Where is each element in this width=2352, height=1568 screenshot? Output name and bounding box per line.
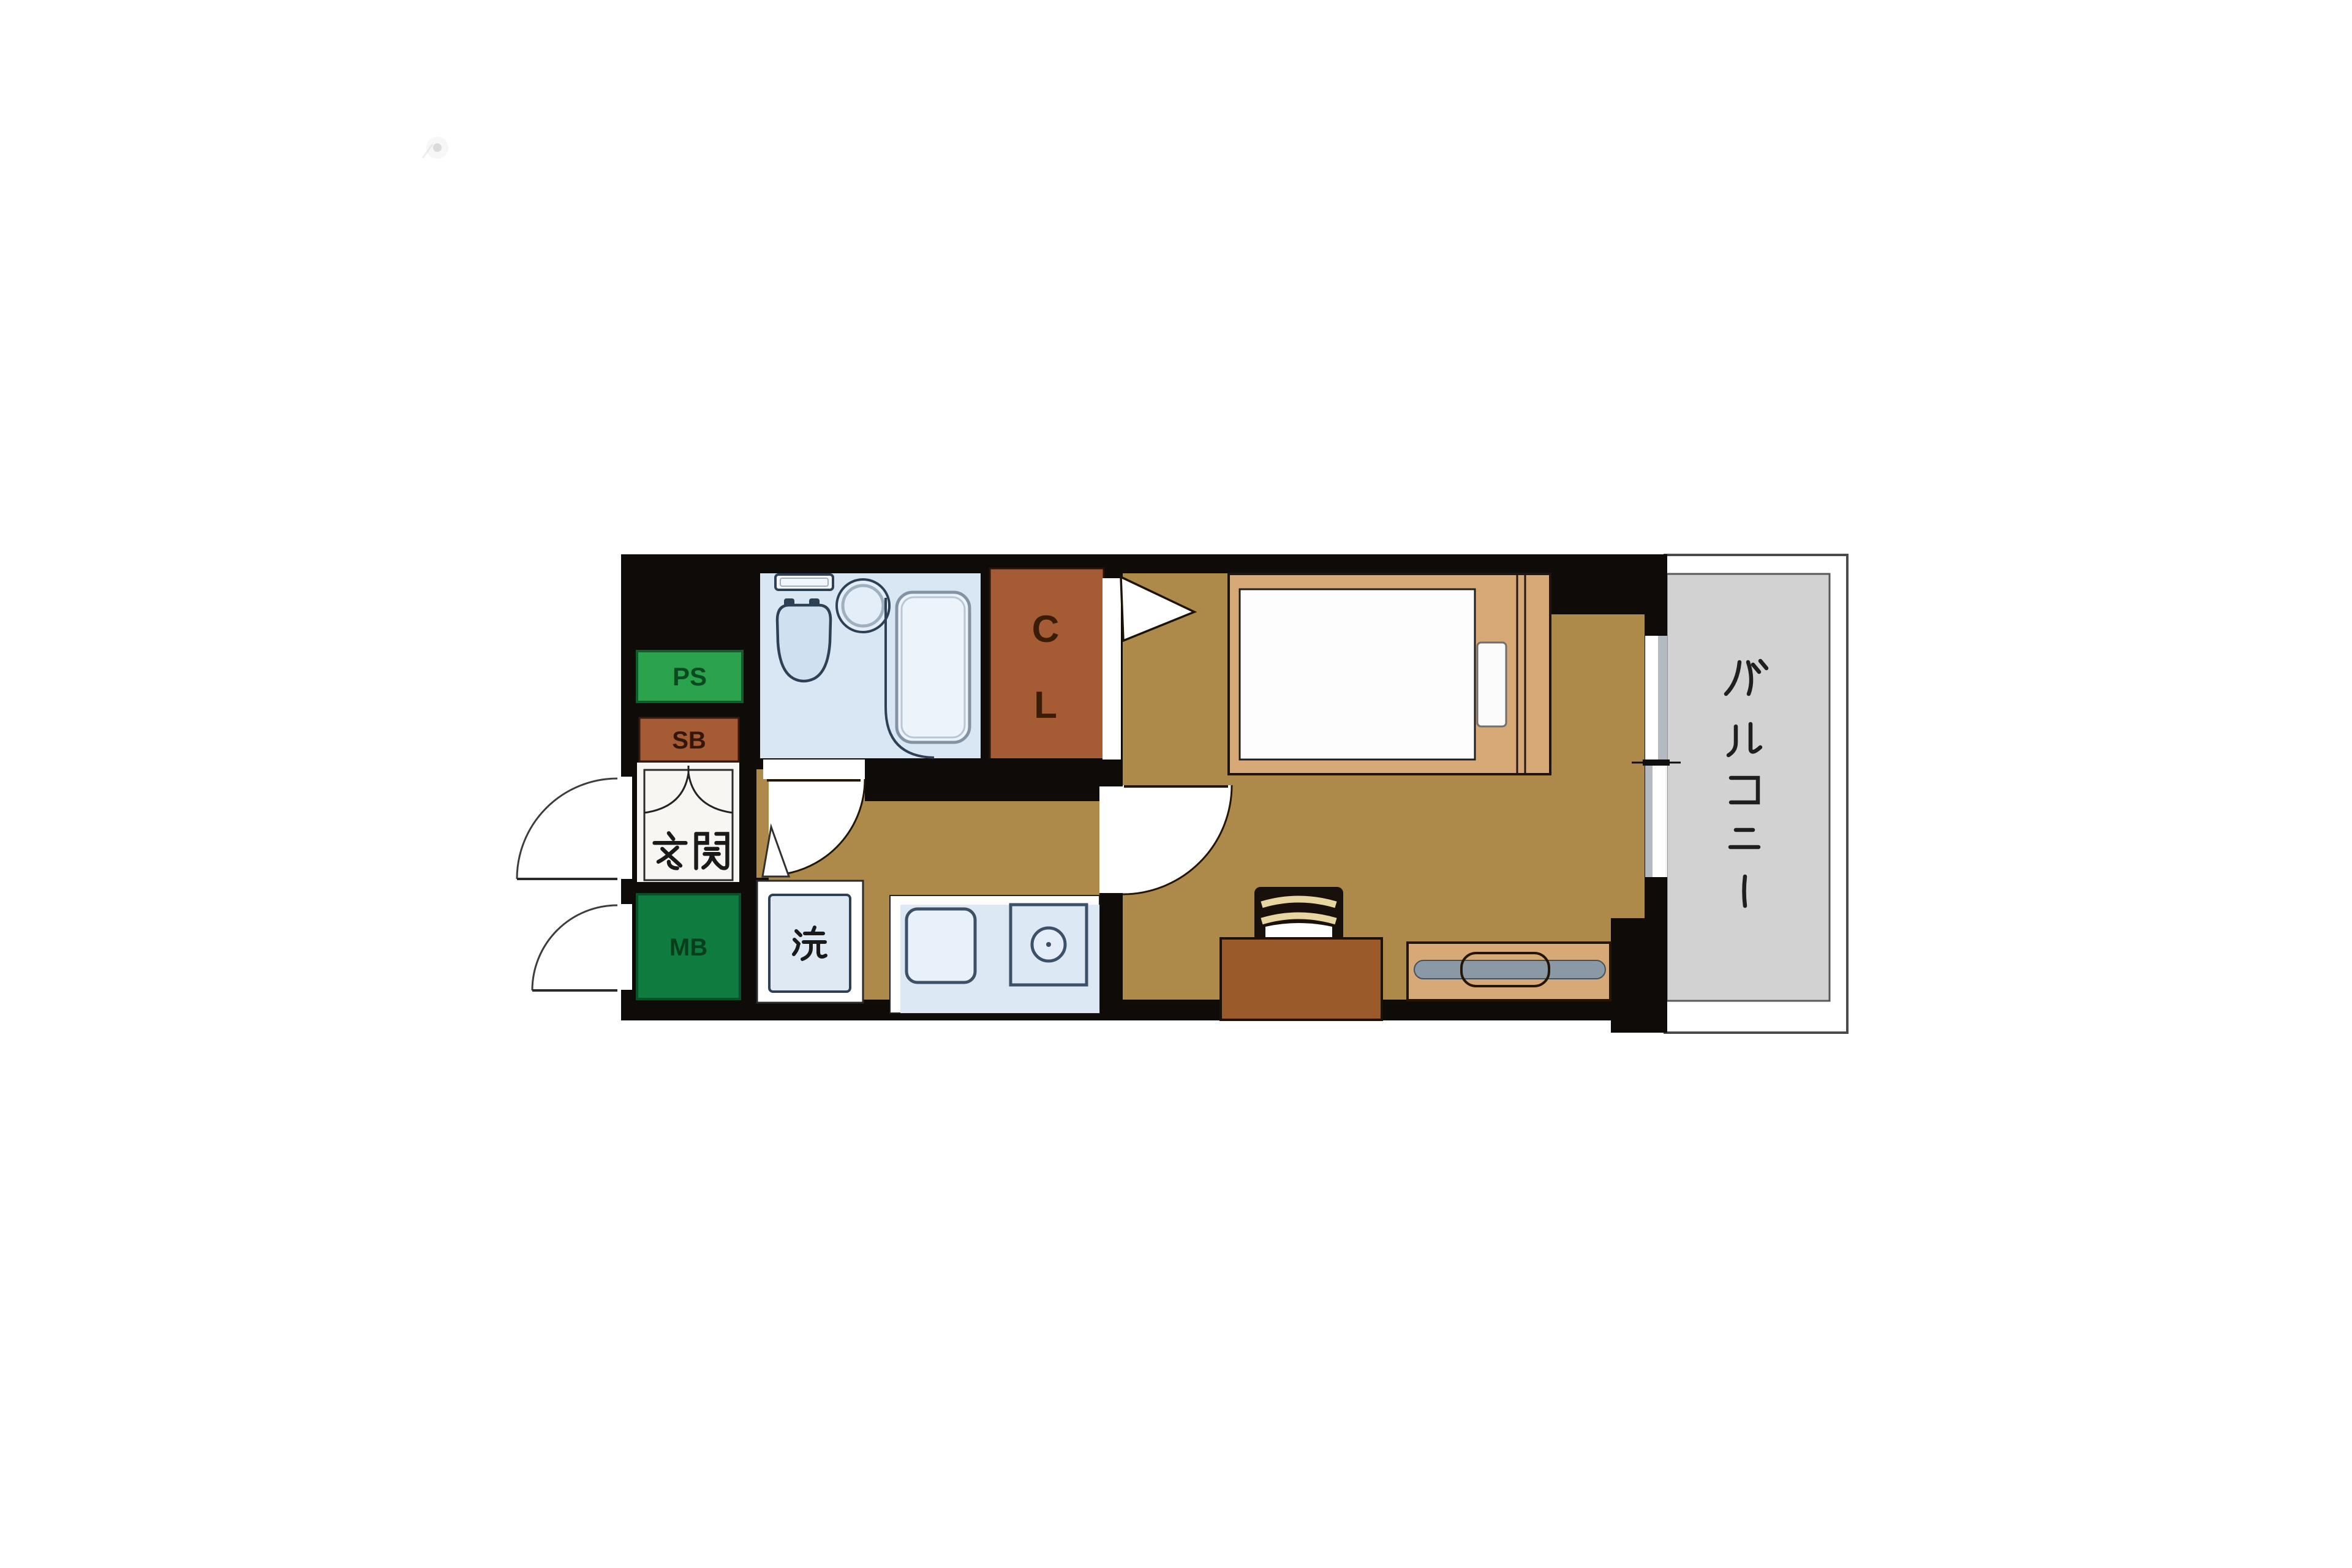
svg-text:PS: PS bbox=[673, 662, 707, 691]
svg-text:SB: SB bbox=[672, 727, 706, 754]
svg-text:C: C bbox=[1032, 608, 1060, 650]
svg-text:MB: MB bbox=[669, 934, 707, 961]
svg-text:L: L bbox=[1034, 684, 1057, 726]
